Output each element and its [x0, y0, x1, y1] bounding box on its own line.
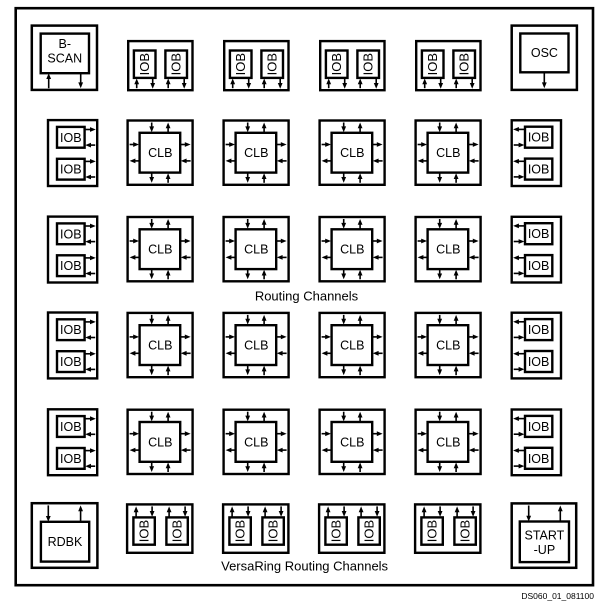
svg-text:OSC: OSC: [531, 46, 558, 60]
svg-text:CLB: CLB: [340, 243, 364, 257]
svg-text:IOB: IOB: [169, 53, 184, 75]
svg-text:Routing Channels: Routing Channels: [255, 288, 359, 303]
svg-text:RDBK: RDBK: [48, 535, 83, 549]
svg-text:IOB: IOB: [528, 131, 550, 145]
svg-text:IOB: IOB: [60, 259, 82, 273]
svg-text:IOB: IOB: [361, 53, 376, 75]
svg-text:IOB: IOB: [60, 452, 82, 466]
svg-text:IOB: IOB: [233, 53, 248, 75]
svg-text:IOB: IOB: [528, 323, 550, 337]
svg-text:CLB: CLB: [340, 339, 364, 353]
svg-text:-UP: -UP: [534, 543, 556, 557]
svg-text:IOB: IOB: [425, 53, 440, 75]
svg-text:CLB: CLB: [148, 339, 172, 353]
svg-text:IOB: IOB: [60, 131, 82, 145]
svg-text:IOB: IOB: [60, 227, 82, 241]
svg-text:CLB: CLB: [436, 339, 460, 353]
svg-text:IOB: IOB: [425, 520, 440, 542]
svg-text:CLB: CLB: [244, 435, 268, 449]
svg-text:IOB: IOB: [329, 520, 344, 542]
svg-text:IOB: IOB: [329, 53, 344, 75]
svg-text:IOB: IOB: [137, 520, 152, 542]
svg-text:DS060_01_081100: DS060_01_081100: [521, 591, 594, 601]
svg-text:IOB: IOB: [266, 520, 281, 542]
svg-text:CLB: CLB: [436, 435, 460, 449]
svg-text:IOB: IOB: [170, 520, 185, 542]
svg-text:IOB: IOB: [528, 259, 550, 273]
svg-text:B-: B-: [59, 37, 72, 51]
svg-text:IOB: IOB: [137, 53, 152, 75]
svg-text:IOB: IOB: [528, 227, 550, 241]
svg-text:IOB: IOB: [60, 163, 82, 177]
svg-text:CLB: CLB: [148, 146, 172, 160]
svg-text:IOB: IOB: [528, 420, 550, 434]
svg-text:IOB: IOB: [60, 420, 82, 434]
svg-text:SCAN: SCAN: [47, 52, 82, 66]
svg-text:CLB: CLB: [340, 435, 364, 449]
svg-text:IOB: IOB: [362, 520, 377, 542]
svg-text:IOB: IOB: [60, 323, 82, 337]
svg-text:CLB: CLB: [148, 435, 172, 449]
svg-text:IOB: IOB: [458, 520, 473, 542]
svg-text:IOB: IOB: [60, 355, 82, 369]
svg-text:IOB: IOB: [265, 53, 280, 75]
svg-text:CLB: CLB: [340, 146, 364, 160]
svg-text:IOB: IOB: [528, 452, 550, 466]
svg-text:CLB: CLB: [436, 146, 460, 160]
svg-text:CLB: CLB: [244, 146, 268, 160]
svg-text:CLB: CLB: [244, 243, 268, 257]
svg-text:IOB: IOB: [233, 520, 248, 542]
svg-text:IOB: IOB: [528, 163, 550, 177]
svg-text:CLB: CLB: [436, 243, 460, 257]
svg-text:CLB: CLB: [148, 243, 172, 257]
svg-text:START: START: [524, 528, 564, 542]
svg-text:IOB: IOB: [457, 53, 472, 75]
svg-text:VersaRing Routing Channels: VersaRing Routing Channels: [221, 558, 388, 573]
svg-text:CLB: CLB: [244, 339, 268, 353]
svg-text:IOB: IOB: [528, 355, 550, 369]
